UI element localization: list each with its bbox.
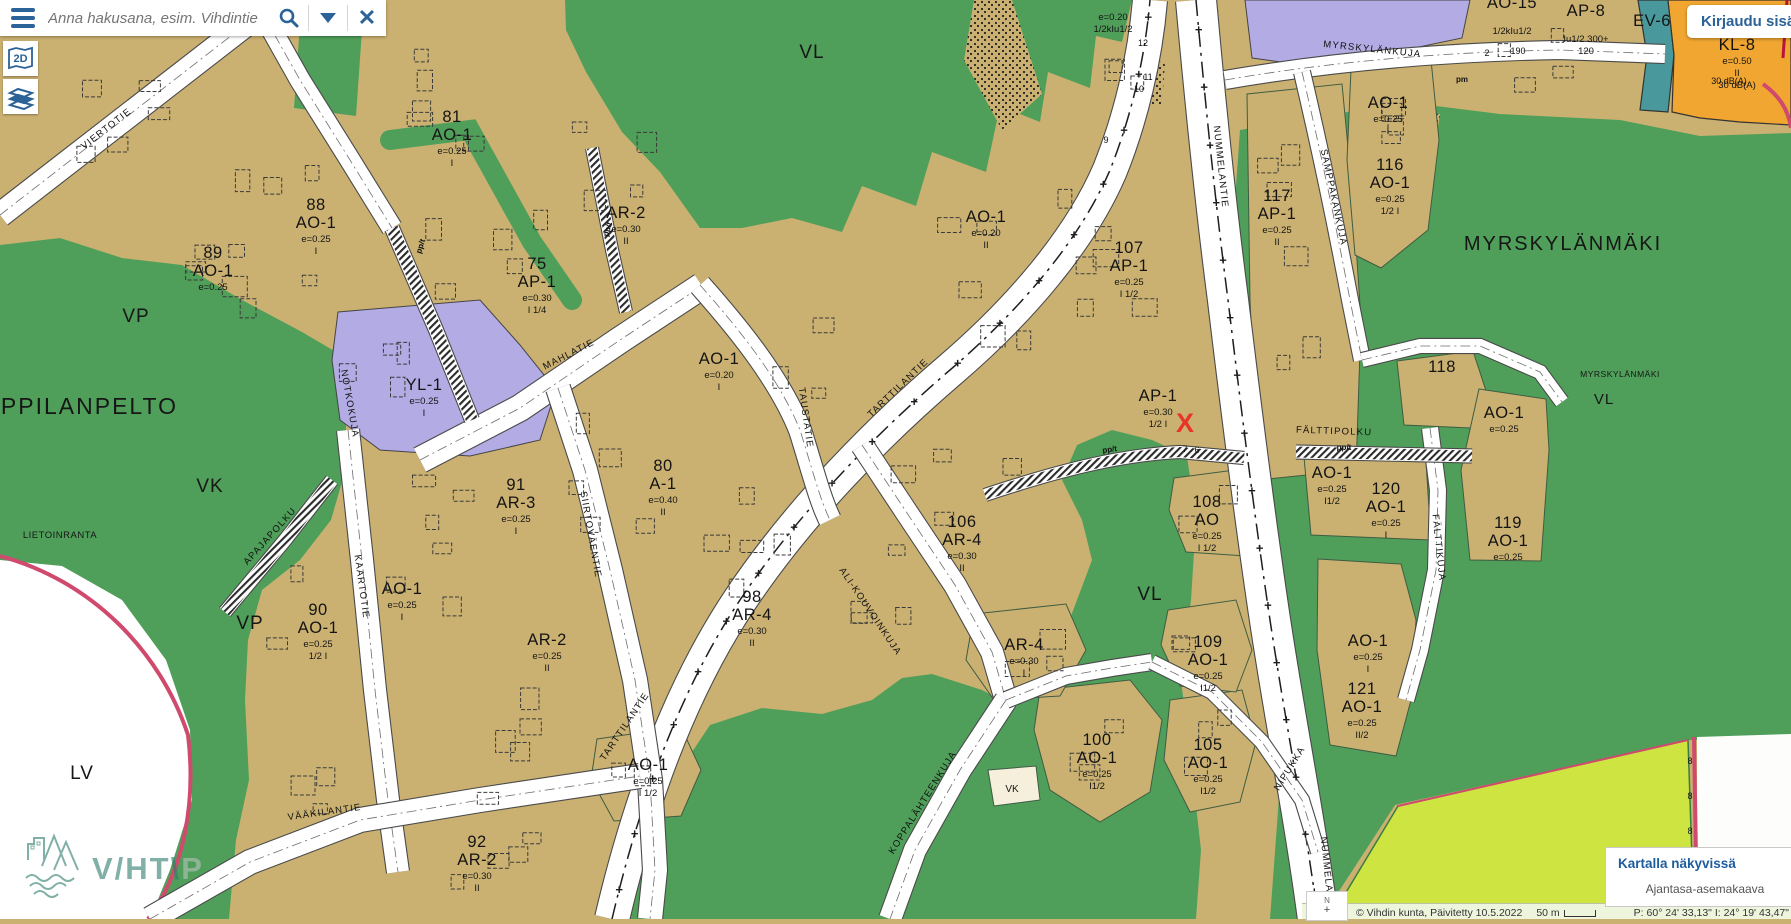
svg-text:e=0.20: e=0.20 (704, 370, 733, 381)
lot-number: 11 (1143, 72, 1152, 82)
svg-text:+: + (790, 519, 798, 534)
svg-text:AR-2: AR-2 (606, 204, 646, 222)
svg-text:+: + (996, 316, 1004, 331)
svg-text:AR-4: AR-4 (942, 531, 982, 549)
svg-text:I: I (401, 612, 404, 623)
svg-text:e=0.25: e=0.25 (1489, 424, 1518, 435)
svg-text:e=0.25: e=0.25 (1353, 652, 1382, 663)
path-type-label: pp/t (1337, 443, 1352, 452)
svg-text:81: 81 (442, 108, 461, 126)
svg-text:e=0.25: e=0.25 (1375, 194, 1404, 205)
svg-text:AO-1: AO-1 (1368, 94, 1409, 112)
svg-text:e=0.25: e=0.25 (1317, 484, 1346, 495)
svg-text:e=0.25: e=0.25 (437, 146, 466, 157)
svg-text:1/2 I: 1/2 I (309, 651, 328, 662)
svg-text:e=0.25: e=0.25 (301, 234, 330, 245)
lot-number: 190 (1510, 46, 1525, 56)
x-marker[interactable]: X (1176, 408, 1194, 438)
svg-text:AO-15: AO-15 (1487, 0, 1537, 12)
layers-button[interactable] (3, 79, 38, 114)
svg-text:+: + (694, 664, 702, 679)
svg-text:AO-1: AO-1 (1312, 464, 1353, 482)
search-bar: ✕ (0, 0, 386, 36)
svg-text:AO-1: AO-1 (1484, 404, 1525, 422)
svg-text:92: 92 (467, 833, 486, 851)
svg-text:+: + (1256, 540, 1264, 555)
svg-text:118: 118 (1428, 358, 1456, 376)
svg-text:II: II (623, 236, 628, 247)
svg-text:+: + (631, 826, 639, 841)
svg-text:+: + (755, 565, 763, 580)
svg-text:AO-1: AO-1 (1077, 749, 1118, 767)
svg-text:75: 75 (527, 255, 546, 273)
svg-text:e=0.25: e=0.25 (198, 282, 227, 293)
lot-number: 8 (1687, 756, 1692, 766)
svg-text:e=0.30: e=0.30 (1009, 656, 1038, 667)
svg-text:I: I (423, 408, 426, 419)
svg-text:+: + (615, 882, 623, 897)
legend-panel: Kartalla näkyvissä Ajantasa-asemakaava (1605, 847, 1791, 907)
svg-text:AP-1: AP-1 (518, 273, 557, 291)
svg-text:98: 98 (742, 588, 761, 606)
svg-text:II: II (660, 507, 665, 518)
svg-text:e=0.20: e=0.20 (1098, 12, 1127, 23)
svg-text:91: 91 (506, 476, 525, 494)
svg-text:119: 119 (1494, 514, 1522, 532)
svg-text:II: II (983, 240, 988, 251)
lot-number: 10 (1134, 84, 1144, 94)
svg-text:I 1/2: I 1/2 (1198, 543, 1217, 554)
svg-text:I1/2: I1/2 (1324, 496, 1340, 507)
search-button[interactable] (270, 0, 308, 36)
legend-title: Kartalla näkyvissä (1618, 856, 1791, 871)
svg-text:e=0.40: e=0.40 (648, 495, 677, 506)
svg-text:107: 107 (1114, 239, 1143, 257)
svg-text:AR-2: AR-2 (457, 851, 497, 869)
svg-text:I1/2: I1/2 (1089, 781, 1105, 792)
svg-text:AO-1: AO-1 (296, 214, 337, 232)
svg-text:AO-1: AO-1 (1188, 651, 1229, 669)
svg-text:+: + (1035, 273, 1043, 288)
svg-text:+: + (828, 476, 836, 491)
svg-text:e=0.30: e=0.30 (1143, 407, 1172, 418)
svg-text:I: I (1023, 668, 1026, 679)
svg-text:e=0.25: e=0.25 (1347, 718, 1376, 729)
place-name: VL (1137, 584, 1162, 605)
svg-text:+: + (1144, 9, 1152, 24)
svg-text:AP-1: AP-1 (1110, 257, 1149, 275)
place-name: MYRSKYLÄNMÄKI (1464, 233, 1662, 255)
zone-label: e=0.201/2kIu1/2 (1093, 12, 1132, 35)
close-icon: ✕ (358, 7, 376, 29)
svg-text:AO-1: AO-1 (1188, 754, 1229, 772)
layers-icon (7, 83, 35, 111)
svg-text:AP-1: AP-1 (1139, 387, 1178, 405)
zone-label: EV-6 (1633, 12, 1671, 30)
lot-number: 9 (1103, 135, 1108, 145)
chevron-down-icon (320, 13, 336, 23)
zone-label: AO-1e=0.25 (1484, 404, 1525, 435)
svg-text:120: 120 (1371, 480, 1400, 498)
search-options-button[interactable] (309, 0, 347, 36)
scale-bar (1564, 910, 1596, 917)
svg-text:121: 121 (1347, 680, 1376, 698)
svg-text:I: I (515, 526, 518, 537)
svg-text:I: I (451, 158, 454, 169)
svg-text:1/2kIu1/2: 1/2kIu1/2 (1492, 26, 1531, 37)
svg-text:+: + (1070, 227, 1078, 242)
svg-text:e=0.30: e=0.30 (737, 626, 766, 637)
svg-text:e=0.25: e=0.25 (409, 396, 438, 407)
path-type-label: pm (1456, 75, 1468, 84)
svg-text:1/2 I: 1/2 I (1149, 419, 1168, 430)
svg-text:AO-1: AO-1 (628, 756, 669, 774)
place-name: VP (236, 613, 263, 634)
svg-text:AO-1: AO-1 (699, 350, 740, 368)
svg-text:108: 108 (1192, 493, 1221, 511)
svg-text:+: + (910, 394, 918, 409)
svg-text:106: 106 (947, 513, 976, 531)
svg-text:YL-1: YL-1 (406, 376, 443, 394)
svg-text:I 1/4: I 1/4 (528, 305, 547, 316)
svg-text:II: II (474, 883, 479, 894)
svg-text:e=0.25: e=0.25 (1193, 774, 1222, 785)
svg-text:I: I (1387, 126, 1390, 137)
svg-text:116: 116 (1376, 156, 1404, 174)
svg-text:+: + (670, 717, 678, 732)
svg-text:e=0.50: e=0.50 (1722, 56, 1751, 67)
svg-text:+: + (1135, 67, 1143, 82)
svg-text:AO-1: AO-1 (1366, 498, 1407, 516)
svg-text:I 1/2: I 1/2 (639, 788, 658, 799)
svg-text:100: 100 (1082, 731, 1111, 749)
lot-number: 8 (1687, 826, 1692, 836)
svg-text:AO-1: AO-1 (1370, 174, 1411, 192)
svg-text:e=0.25: e=0.25 (1192, 531, 1221, 542)
legend-item: Ajantasa-asemakaava (1618, 882, 1791, 896)
svg-text:e=0.30: e=0.30 (462, 871, 491, 882)
svg-text:AR-4: AR-4 (732, 606, 772, 624)
svg-text:I: I (315, 246, 318, 257)
clear-search-button[interactable]: ✕ (348, 0, 386, 36)
svg-text:AO-1: AO-1 (382, 580, 423, 598)
map-mode-2d-button[interactable]: 2D (3, 41, 38, 76)
svg-text:109: 109 (1193, 633, 1222, 651)
login-button[interactable]: Kirjaudu sisään (1687, 5, 1791, 38)
search-input[interactable] (46, 9, 270, 28)
svg-text:II/2: II/2 (1355, 730, 1368, 741)
svg-text:AO-1: AO-1 (432, 126, 473, 144)
svg-text:80: 80 (653, 457, 672, 475)
svg-text:II: II (1274, 237, 1279, 248)
scale-indicator: 50 m (1536, 907, 1595, 919)
svg-text:e=0.25: e=0.25 (303, 639, 332, 650)
svg-text:AO-1: AO-1 (1348, 632, 1389, 650)
svg-text:e=0.20: e=0.20 (971, 228, 1000, 239)
coordinates-readout: P: 60° 24' 33,13" I: 24° 19' 43,47" (1634, 907, 1789, 919)
svg-text:EV-6: EV-6 (1633, 12, 1671, 30)
svg-text:AO-1: AO-1 (1342, 698, 1383, 716)
map-attribution: © Vihdin kunta, Päivitetty 10.5.2022 (1356, 907, 1522, 919)
svg-text:+: + (1241, 425, 1249, 440)
svg-text:I1/2: I1/2 (1200, 786, 1216, 797)
svg-text:e=0.25: e=0.25 (1082, 769, 1111, 780)
svg-text:e=0.25: e=0.25 (1193, 671, 1222, 682)
place-name: MYRSKYLÄNMÄKI (1580, 369, 1660, 379)
svg-text:+: + (868, 434, 876, 449)
place-name: VP (122, 306, 149, 327)
svg-text:e=0.25: e=0.25 (1371, 518, 1400, 529)
svg-text:e=0.25: e=0.25 (501, 514, 530, 525)
svg-text:+: + (1282, 712, 1290, 727)
svg-text:e=0.25: e=0.25 (1493, 552, 1522, 563)
lot-number: 2 (1484, 48, 1489, 58)
svg-text:AP-1: AP-1 (1258, 205, 1297, 223)
svg-text:+: + (1302, 827, 1310, 842)
svg-text:e=0.25: e=0.25 (1373, 114, 1402, 125)
place-name: VL (799, 42, 824, 63)
svg-text:+: + (1226, 310, 1234, 325)
svg-text:II: II (959, 563, 964, 574)
crosshair-icon: + (1324, 905, 1330, 916)
svg-text:Iu1/2 300+: Iu1/2 300+ (1563, 34, 1609, 45)
svg-text:+: + (1195, 22, 1203, 37)
place-name: LIETOINRANTA (23, 530, 97, 541)
svg-text:A-1: A-1 (649, 475, 676, 493)
place-name: VL (1594, 391, 1614, 408)
svg-text:AO-1: AO-1 (1488, 532, 1529, 550)
svg-text:e=0.25: e=0.25 (1114, 277, 1143, 288)
lot-number: 30 dB(A) (1711, 76, 1747, 86)
svg-text:AO-1: AO-1 (966, 208, 1007, 226)
svg-text:II: II (544, 663, 549, 674)
2d-map-icon: 2D (7, 45, 34, 72)
lot-number: 6 (1194, 445, 1199, 455)
svg-text:AR-2: AR-2 (527, 631, 567, 649)
svg-text:1/2kIu1/2: 1/2kIu1/2 (1093, 24, 1132, 35)
svg-text:I: I (1367, 664, 1370, 675)
svg-text:I: I (1385, 530, 1388, 541)
svg-text:KL-8: KL-8 (1719, 36, 1756, 54)
svg-text:e=0.25: e=0.25 (633, 776, 662, 787)
zone-label: 118 (1428, 358, 1456, 376)
svg-text:AO: AO (1195, 511, 1220, 529)
svg-text:90: 90 (308, 601, 327, 619)
search-icon (278, 7, 300, 29)
lot-number: 8 (1687, 791, 1692, 801)
svg-text:e=0.25: e=0.25 (387, 600, 416, 611)
svg-text:I 1/2: I 1/2 (1120, 289, 1139, 300)
svg-text:+: + (722, 614, 730, 629)
place-name: LV (70, 763, 94, 784)
svg-text:AO-1: AO-1 (193, 262, 234, 280)
svg-text:I: I (718, 382, 721, 393)
svg-text:+: + (1273, 655, 1281, 670)
svg-text:AP-8: AP-8 (1567, 2, 1606, 20)
svg-text:+: + (1264, 598, 1272, 613)
menu-icon[interactable] (0, 0, 46, 36)
north-indicator[interactable]: N + (1306, 891, 1348, 921)
svg-text:1/2 I: 1/2 I (1381, 206, 1400, 217)
svg-text:105: 105 (1193, 736, 1222, 754)
svg-text:e=0.30: e=0.30 (947, 551, 976, 562)
lot-number: 7 (1182, 444, 1187, 454)
place-name: VK (1005, 784, 1019, 795)
svg-text:e=0.30: e=0.30 (611, 224, 640, 235)
svg-text:+: + (1219, 253, 1227, 268)
lot-number: 12 (1138, 38, 1148, 48)
svg-text:e=0.25: e=0.25 (532, 651, 561, 662)
svg-text:AR-4: AR-4 (1004, 636, 1044, 654)
svg-text:88: 88 (306, 196, 325, 214)
svg-text:AO-1: AO-1 (298, 619, 339, 637)
map-canvas[interactable]: +++++++++++++++++++++++++++++++++++ 81AO… (0, 0, 1791, 919)
svg-text:e=0.30: e=0.30 (522, 293, 551, 304)
svg-text:+: + (1099, 177, 1107, 192)
svg-text:+: + (1233, 368, 1241, 383)
svg-text:II: II (749, 638, 754, 649)
svg-text:89: 89 (203, 244, 222, 262)
svg-text:+: + (1248, 483, 1256, 498)
svg-text:I1/2: I1/2 (1200, 683, 1216, 694)
place-name: PAPPILANPELTO (0, 393, 178, 419)
svg-text:2D: 2D (13, 53, 27, 65)
svg-text:120: 120 (1578, 46, 1594, 57)
svg-text:+: + (1120, 123, 1128, 138)
svg-text:117: 117 (1263, 187, 1291, 205)
svg-text:AR-3: AR-3 (496, 494, 536, 512)
svg-text:+: + (1200, 80, 1208, 95)
svg-text:e=0.25: e=0.25 (1262, 225, 1291, 236)
place-name: VK (196, 476, 223, 497)
zoning-map: +++++++++++++++++++++++++++++++++++ 81AO… (0, 0, 1791, 919)
svg-text:+: + (954, 355, 962, 370)
